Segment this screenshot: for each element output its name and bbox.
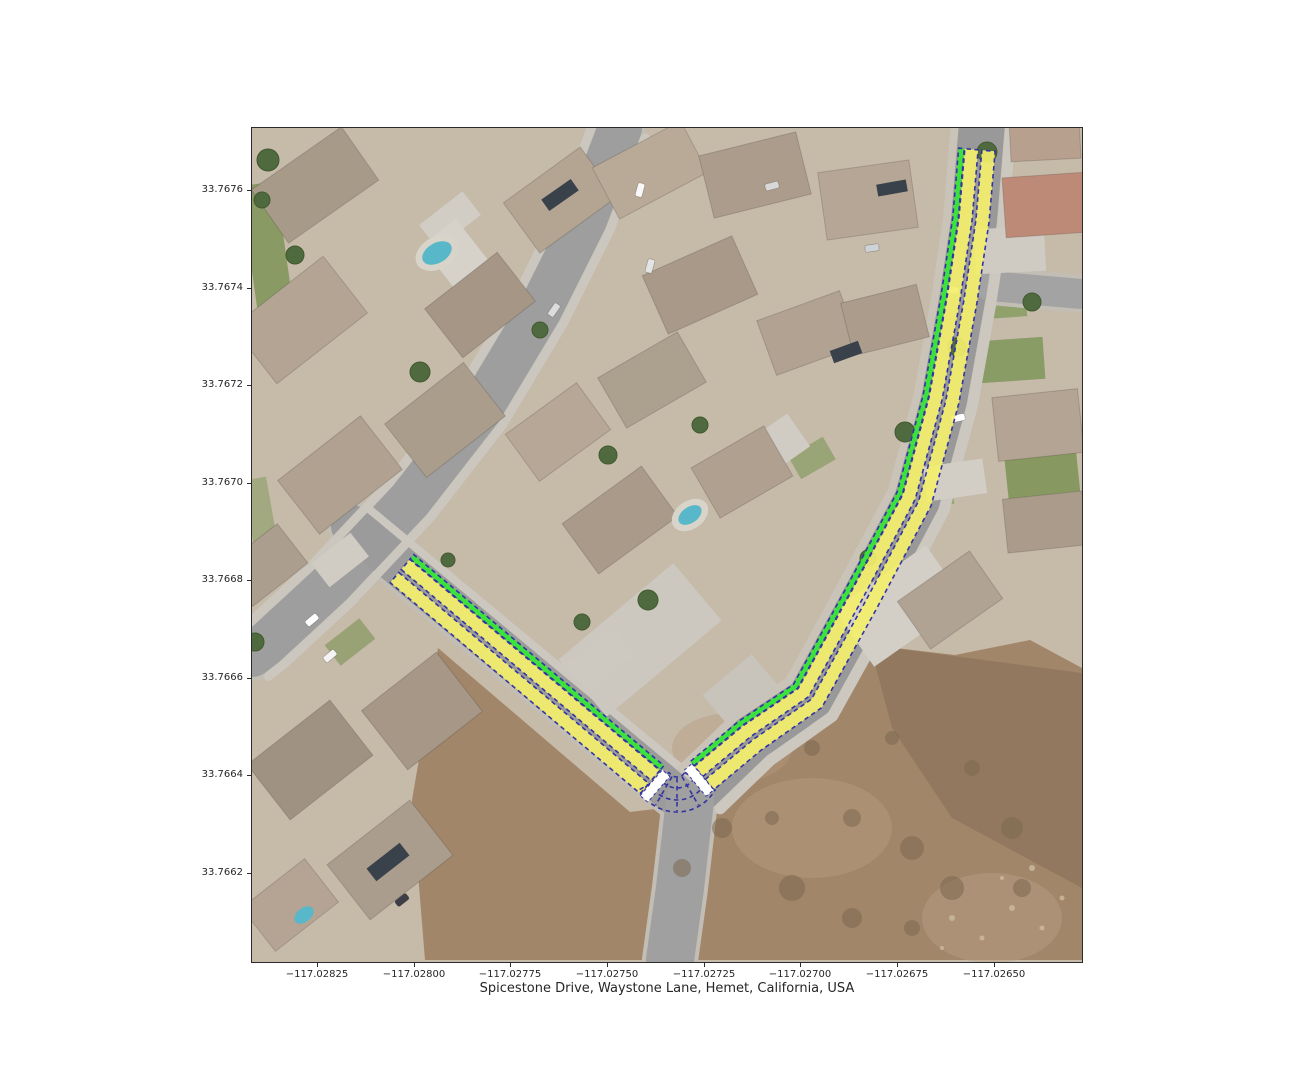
scrub-bush: [673, 859, 691, 877]
tick-mark: [317, 963, 318, 967]
tick-mark: [247, 775, 251, 776]
tick-mark: [897, 963, 898, 967]
y-tick-label: 33.7662: [0, 867, 243, 878]
house-roof: [1009, 128, 1081, 162]
scrub-bush: [900, 836, 924, 860]
house-roof: [992, 389, 1082, 462]
scrub-bush: [712, 818, 732, 838]
street: [990, 286, 1082, 294]
tree: [441, 553, 455, 567]
x-tick-label: −117.02800: [369, 969, 459, 980]
satellite-scene: [252, 128, 1082, 962]
tick-mark: [994, 963, 995, 967]
scrub-bush: [779, 875, 805, 901]
scrub-bush: [904, 920, 920, 936]
y-tick-label: 33.7672: [0, 379, 243, 390]
rock: [980, 936, 985, 941]
tick-mark: [247, 873, 251, 874]
y-tick-label: 33.7666: [0, 672, 243, 683]
map-plot: [251, 127, 1083, 963]
rock: [949, 915, 955, 921]
tree: [254, 192, 270, 208]
dirt-wash: [732, 778, 892, 878]
rock: [1060, 896, 1065, 901]
house-roof: [818, 160, 919, 240]
tick-mark: [247, 288, 251, 289]
tick-mark: [247, 483, 251, 484]
rock: [940, 946, 944, 950]
y-tick-label: 33.7670: [0, 477, 243, 488]
rock: [1029, 865, 1035, 871]
tick-mark: [800, 963, 801, 967]
x-tick-label: −117.02675: [852, 969, 942, 980]
scrub-bush: [804, 740, 820, 756]
rock: [1040, 926, 1045, 931]
y-tick-label: 33.7664: [0, 769, 243, 780]
tree: [638, 590, 658, 610]
scrub-bush: [940, 876, 964, 900]
tick-mark: [247, 385, 251, 386]
scrub-bush: [842, 908, 862, 928]
car: [865, 244, 880, 253]
tick-mark: [510, 963, 511, 967]
house-roof: [1002, 491, 1082, 553]
x-tick-label: −117.02775: [465, 969, 555, 980]
tick-mark: [247, 678, 251, 679]
tree: [599, 446, 617, 464]
scrub-bush: [765, 811, 779, 825]
figure: 33.767633.767433.767233.767033.766833.76…: [0, 0, 1299, 1080]
scrub-bush: [843, 809, 861, 827]
y-tick-label: 33.7668: [0, 574, 243, 585]
scrub-bush: [1001, 817, 1023, 839]
tree: [692, 417, 708, 433]
x-tick-label: −117.02700: [755, 969, 845, 980]
tree: [410, 362, 430, 382]
tick-mark: [247, 580, 251, 581]
y-tick-label: 33.7674: [0, 282, 243, 293]
tick-mark: [247, 190, 251, 191]
tree: [286, 246, 304, 264]
street: [670, 800, 690, 960]
scrub-bush: [1013, 879, 1031, 897]
tree: [574, 614, 590, 630]
tick-mark: [414, 963, 415, 967]
x-tick-label: −117.02750: [562, 969, 652, 980]
house-roof: [1002, 172, 1082, 238]
x-tick-label: −117.02825: [272, 969, 362, 980]
scrub-bush: [964, 760, 980, 776]
tick-mark: [704, 963, 705, 967]
y-tick-label: 33.7676: [0, 184, 243, 195]
tree: [257, 149, 279, 171]
tree: [532, 322, 548, 338]
x-tick-label: −117.02725: [659, 969, 749, 980]
scrub-bush: [885, 731, 899, 745]
tick-mark: [607, 963, 608, 967]
rock: [1000, 876, 1004, 880]
axis-title: Spicestone Drive, Waystone Lane, Hemet, …: [252, 981, 1082, 996]
rock: [1009, 905, 1015, 911]
tree: [1023, 293, 1041, 311]
x-tick-label: −117.02650: [949, 969, 1039, 980]
